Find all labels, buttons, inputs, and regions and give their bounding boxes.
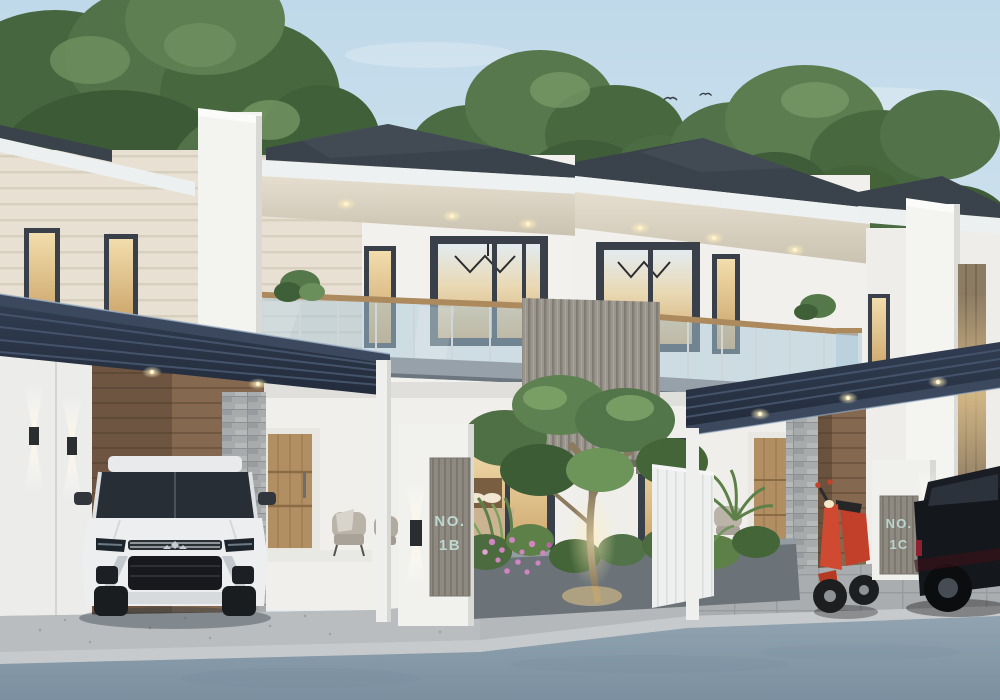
house-number-line2: 1B <box>439 537 461 554</box>
suv-tire <box>94 586 128 616</box>
suv-mirror <box>74 492 92 505</box>
downlight <box>630 222 650 234</box>
downlight <box>142 366 162 378</box>
downlight <box>248 378 268 390</box>
white-suv <box>74 456 276 629</box>
cloud <box>345 42 515 68</box>
scooter-mirror <box>827 479 833 485</box>
house-number-line2: 1C <box>889 537 908 552</box>
carport-side-wall <box>0 330 92 622</box>
door-step <box>256 550 372 562</box>
suv-mirror <box>258 492 276 505</box>
scooter-mirror <box>815 482 821 488</box>
downlight <box>785 244 805 256</box>
suv-roof <box>108 456 242 472</box>
downlight <box>442 210 462 222</box>
downlight <box>336 198 356 210</box>
house-number-line1: NO. <box>434 513 465 530</box>
garden-uplight <box>568 492 616 588</box>
suv-lower-grille <box>128 556 222 590</box>
downlight <box>928 376 948 388</box>
white-fence <box>652 468 714 608</box>
scooter-headlight <box>824 500 834 508</box>
door-handle <box>303 472 306 498</box>
fog-light <box>96 566 118 584</box>
downlight <box>838 392 858 404</box>
house-number-panel <box>880 496 918 574</box>
architectural-render: NO. 1B NO. 1C <box>0 0 1000 700</box>
suv-tire <box>222 586 256 616</box>
downlight <box>750 408 770 420</box>
downlight <box>704 232 724 244</box>
house-number-line1: NO. <box>886 516 913 531</box>
tail-light <box>916 540 922 556</box>
downlight <box>518 218 538 230</box>
shrub <box>732 526 780 558</box>
fog-light <box>232 566 254 584</box>
canopy-column <box>686 428 699 620</box>
